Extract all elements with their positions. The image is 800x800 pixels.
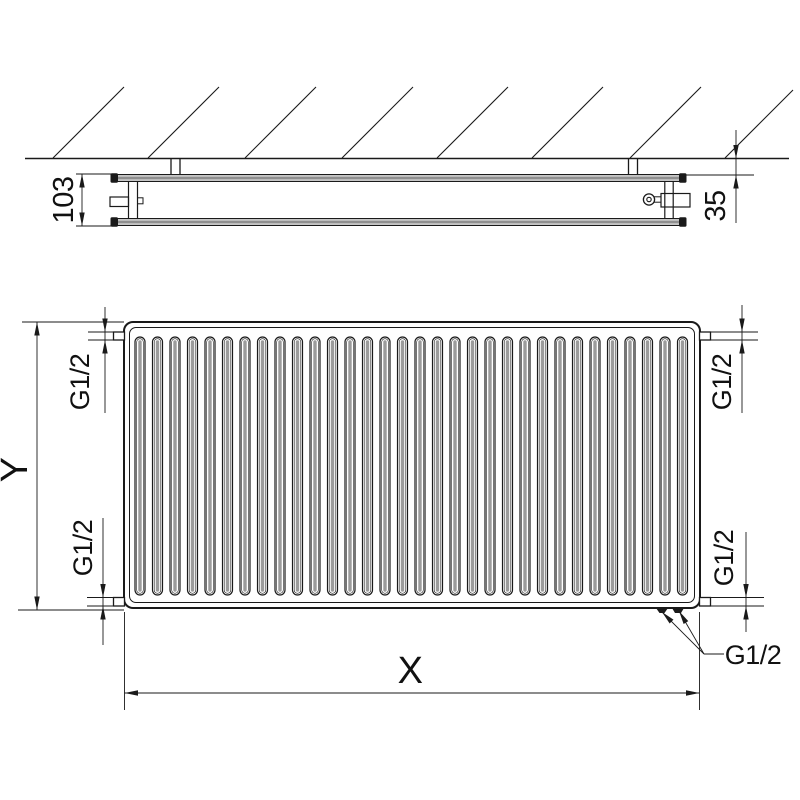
arrowhead-icon: [100, 584, 105, 598]
arrowhead-icon: [34, 322, 39, 336]
drawing-canvas: 103 35 Y X: [0, 0, 800, 800]
arrowhead-icon: [102, 319, 107, 333]
fin-core-shade: [401, 340, 404, 591]
panel-end-cap: [679, 173, 687, 183]
radiator-top-panel: [111, 173, 687, 183]
hatch-line: [53, 87, 124, 158]
fin-core-shade: [348, 340, 351, 591]
arrowhead-icon: [79, 213, 84, 227]
height-dimension-label: Y: [0, 457, 36, 482]
connection-dimension-top-right: G1/2: [707, 305, 758, 413]
fin-core-shade: [313, 340, 316, 591]
fin-core-shade: [156, 340, 159, 591]
arrowhead-icon: [660, 610, 673, 623]
hatch-line: [532, 87, 603, 158]
fin-core-shade: [138, 340, 141, 591]
panel-end-cap: [111, 217, 119, 227]
fin-core-shade: [453, 340, 456, 591]
arrowhead-icon: [102, 340, 107, 354]
fin-core-shade: [208, 340, 211, 591]
hatch-line: [148, 87, 219, 158]
arrowhead-icon: [739, 340, 744, 354]
radiator-bottom-panel: [111, 217, 687, 227]
fin-core-shade: [646, 340, 649, 591]
fin-core-shade: [261, 340, 264, 591]
fin-core-shade: [418, 340, 421, 591]
fin-core-shade: [506, 340, 509, 591]
fin-core-shade: [488, 340, 491, 591]
connection-stub-top-right: [700, 332, 711, 340]
fin-core-shade: [471, 340, 474, 591]
panel-end-cap: [679, 217, 687, 227]
bottom-connections: G1/2: [656, 608, 781, 670]
arrowhead-icon: [686, 690, 700, 695]
connection-label-top-right: G1/2: [707, 354, 737, 411]
arrowhead-icon: [100, 606, 105, 620]
fin-core-shade: [576, 340, 579, 591]
wall-distance-dimension: 35: [686, 130, 754, 223]
fin-core-shade: [611, 340, 614, 591]
connection-label-top-left: G1/2: [65, 354, 95, 411]
width-dimension-label: X: [398, 650, 423, 692]
width-dimension: X: [125, 612, 700, 710]
depth-dimension-label: 103: [48, 177, 80, 224]
fin-core-shade: [278, 340, 281, 591]
connection-label-bottom-leader: G1/2: [725, 640, 782, 670]
hatch-line: [630, 87, 701, 158]
fin-core-shade: [593, 340, 596, 591]
side-view-section: 103 35: [25, 87, 793, 227]
arrowhead-icon: [733, 145, 738, 159]
valve-fitting-right: [643, 194, 690, 208]
panel-end-cap: [111, 173, 119, 183]
fin-core-shade: [681, 340, 684, 591]
hatch-line: [437, 87, 508, 158]
connection-stub-bottom-right: [700, 598, 711, 607]
wall-bracket-left: [171, 159, 180, 175]
connection-label-bottom-left: G1/2: [68, 520, 98, 577]
radiator-technical-drawing: 103 35 Y X: [0, 0, 800, 800]
connection-label-bottom-right: G1/2: [709, 530, 739, 587]
fin-core-shade: [191, 340, 194, 591]
fin-core-shade: [331, 340, 334, 591]
connection-dimension-bottom-left: G1/2: [68, 518, 114, 645]
fin-core-shade: [541, 340, 544, 591]
arrowhead-icon: [34, 597, 39, 611]
arrowhead-icon: [125, 690, 139, 695]
connection-stub-bottom-left: [114, 598, 125, 607]
fin-core-shade: [366, 340, 369, 591]
wall-bracket-right: [629, 159, 638, 175]
fin-core-shade: [383, 340, 386, 591]
fin-core-shade: [173, 340, 176, 591]
arrowhead-icon: [733, 175, 738, 189]
wall-hatching: [53, 87, 793, 158]
fin-core-shade: [523, 340, 526, 591]
fin-core-shade: [226, 340, 229, 591]
fin-core-shade: [243, 340, 246, 591]
fin-core-shade: [436, 340, 439, 591]
fin-core-shade: [663, 340, 666, 591]
connection-dimension-bottom-right: G1/2: [709, 530, 764, 632]
arrowhead-icon: [743, 606, 748, 620]
arrowhead-icon: [79, 174, 84, 188]
wall-distance-dimension-label: 35: [700, 190, 732, 221]
connection-stub-top-left: [114, 332, 125, 340]
bottom-connection-nipple: [672, 608, 684, 613]
arrowhead-icon: [743, 584, 748, 598]
fin-core-shade: [628, 340, 631, 591]
arrowhead-icon: [739, 319, 744, 333]
front-view-section: Y X G1/2 G1/2 G1/2: [0, 305, 781, 710]
depth-dimension: 103: [48, 174, 112, 226]
fin-core-shade: [558, 340, 561, 591]
hatch-line: [342, 87, 413, 158]
panel-strut-left: [129, 182, 138, 218]
fin-core-shade: [296, 340, 299, 591]
hatch-line: [245, 87, 316, 158]
